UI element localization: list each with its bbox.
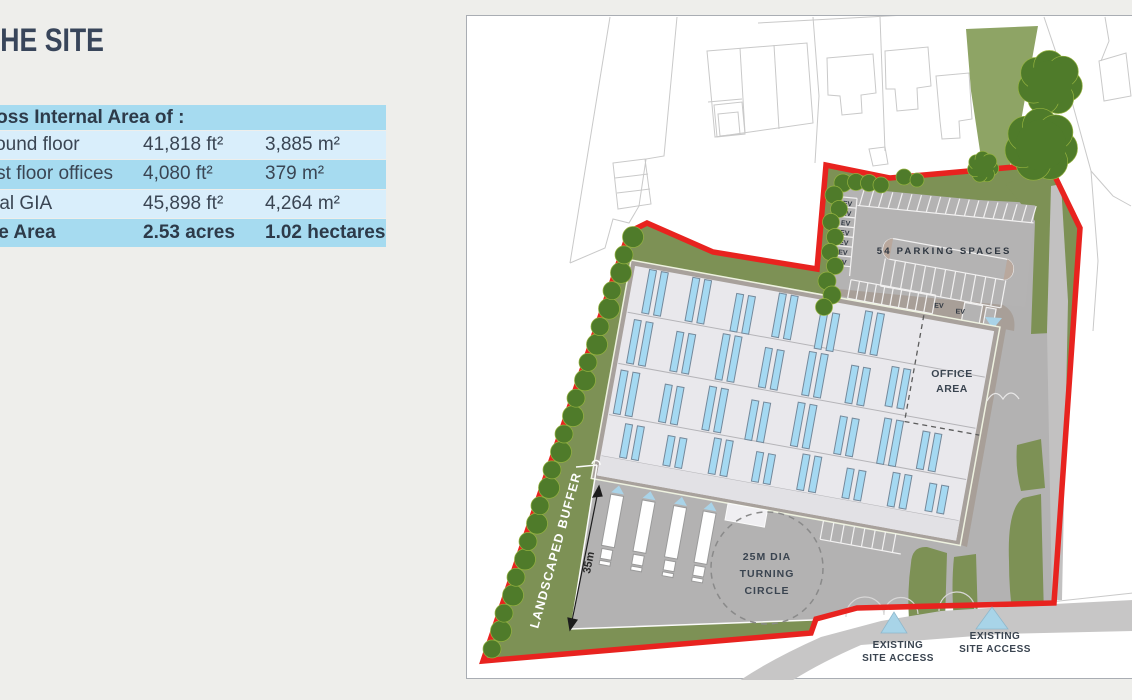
svg-text:EXISTING: EXISTING <box>970 631 1021 642</box>
svg-text:TURNING: TURNING <box>740 568 795 580</box>
svg-text:EV: EV <box>838 249 848 257</box>
svg-text:SITE ACCESS: SITE ACCESS <box>959 644 1031 655</box>
svg-text:EV: EV <box>955 309 965 316</box>
svg-text:CIRCLE: CIRCLE <box>744 585 789 597</box>
svg-text:25M DIA: 25M DIA <box>743 551 791 563</box>
svg-text:OFFICE: OFFICE <box>931 368 973 380</box>
svg-text:EV: EV <box>841 220 851 228</box>
svg-text:SITE ACCESS: SITE ACCESS <box>862 653 934 664</box>
svg-text:54 PARKING SPACES: 54 PARKING SPACES <box>877 246 1012 257</box>
svg-text:AREA: AREA <box>936 383 968 395</box>
svg-text:EXISTING: EXISTING <box>873 640 924 651</box>
svg-text:EV: EV <box>934 303 944 310</box>
